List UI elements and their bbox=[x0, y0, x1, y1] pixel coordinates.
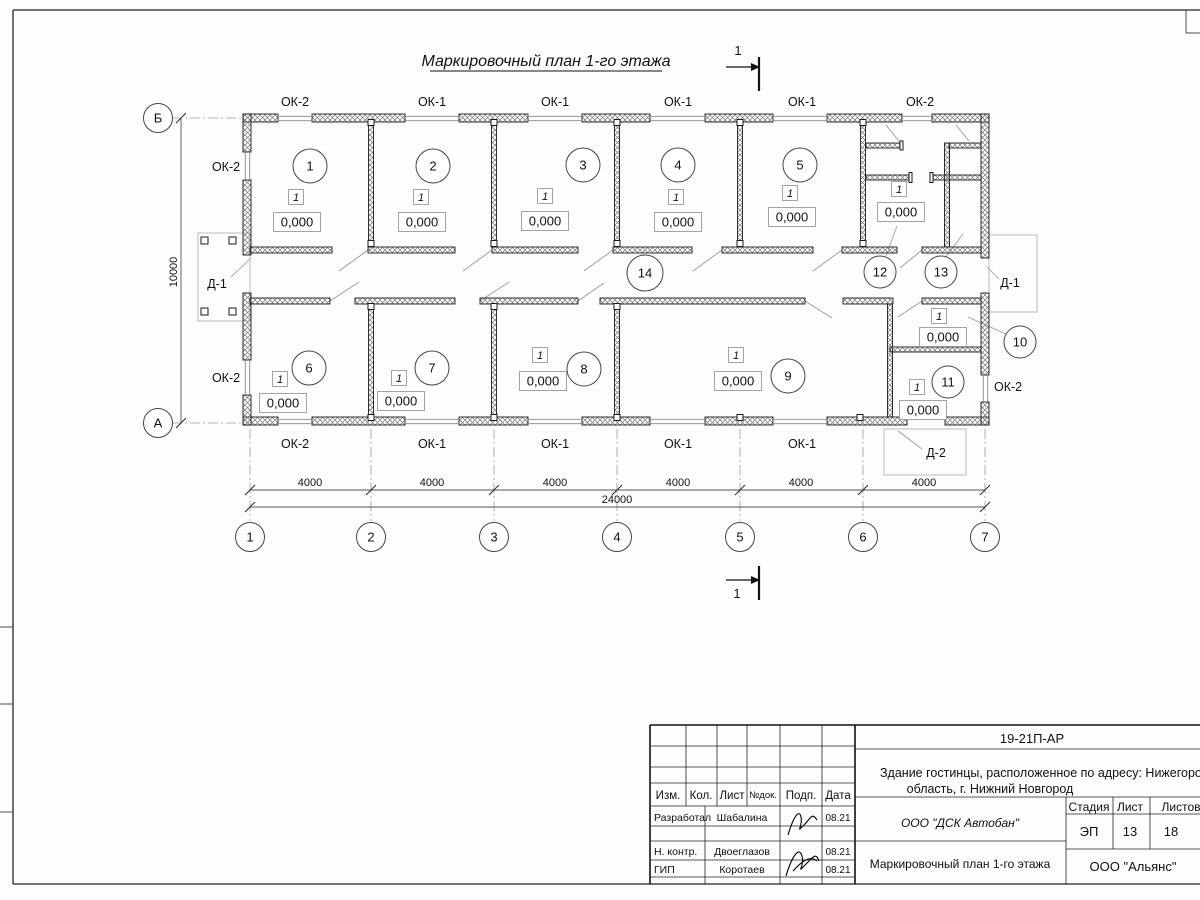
section-label-bottom: 1 bbox=[733, 586, 740, 601]
tb-col-data: Дата bbox=[825, 790, 851, 802]
tb-role-2: Н. контр. bbox=[654, 846, 697, 858]
room-circle-12: 12 bbox=[873, 265, 887, 280]
tb-date-2: 08.21 bbox=[825, 847, 850, 858]
room-circle-6: 6 bbox=[305, 361, 312, 376]
top-window-label-5: ОК-1 bbox=[788, 95, 816, 109]
mark-elev-r9: 0,000 bbox=[722, 374, 755, 389]
room-circle-1: 1 bbox=[306, 159, 313, 174]
tb-col-izm: Изм. bbox=[656, 790, 681, 802]
tb-sheet-value: 13 bbox=[1123, 824, 1137, 839]
mark-elev-r1: 0,000 bbox=[281, 215, 314, 230]
tb-contractor: ООО "Альянс" bbox=[1090, 859, 1177, 874]
drawing-sheet: Маркировочный план 1-го этажа 1 1 4000 4… bbox=[0, 0, 1200, 900]
axis-6: 6 bbox=[859, 530, 866, 545]
tb-sheets-header: Листов bbox=[1162, 800, 1200, 814]
axis-2: 2 bbox=[367, 530, 374, 545]
left-window-label-2: ОК-2 bbox=[212, 371, 240, 385]
room-circle-4: 4 bbox=[674, 158, 681, 173]
mark-elev-r7: 0,000 bbox=[385, 394, 418, 409]
tb-project-line1: Здание гостинцы, расположенное по адресу… bbox=[880, 766, 1200, 780]
mark-elev-z12: 0,000 bbox=[885, 205, 918, 220]
tb-sheet-header: Лист bbox=[1117, 800, 1144, 814]
mark-elev-r6: 0,000 bbox=[267, 396, 300, 411]
bottom-window-label-1: ОК-2 bbox=[281, 437, 309, 451]
dim-total: 24000 bbox=[602, 494, 633, 506]
tb-doc-code: 19-21П-АР bbox=[1000, 731, 1064, 746]
signature-1 bbox=[788, 814, 817, 835]
tb-name-1: Шабалина bbox=[717, 812, 768, 824]
dim-bay-6: 4000 bbox=[912, 477, 936, 489]
tb-project-line2: область, г. Нижний Новгород bbox=[907, 782, 1074, 796]
mark-type-r8: 1 bbox=[537, 350, 543, 362]
mark-type-r1: 1 bbox=[293, 192, 299, 204]
tb-stage-value: ЭП bbox=[1080, 824, 1099, 839]
left-window-label-1: ОК-2 bbox=[212, 160, 240, 174]
plan-title-text: Маркировочный план 1-го этажа bbox=[421, 53, 670, 70]
dim-bay-1: 4000 bbox=[298, 477, 322, 489]
room-circle-11: 11 bbox=[941, 375, 955, 390]
section-mark-top: 1 bbox=[726, 43, 760, 91]
mark-elev-r5: 0,000 bbox=[776, 210, 809, 225]
tb-date-3: 08.21 bbox=[825, 865, 850, 876]
room-circle-3: 3 bbox=[579, 158, 586, 173]
dim-bay-4: 4000 bbox=[666, 477, 690, 489]
tb-role-1: Разработал bbox=[654, 812, 711, 824]
mark-type-r4: 1 bbox=[673, 192, 679, 204]
tb-name-2: Двоеглазов bbox=[714, 846, 770, 858]
tb-name-3: Коротаев bbox=[719, 864, 765, 876]
sheet-frame bbox=[0, 10, 1200, 884]
room-circle-13: 13 bbox=[934, 265, 948, 280]
mark-elev-r10: 0,000 bbox=[927, 330, 960, 345]
room-circle-2: 2 bbox=[429, 159, 436, 174]
plan-title: Маркировочный план 1-го этажа bbox=[421, 53, 670, 71]
section-label-top: 1 bbox=[734, 43, 741, 58]
mark-type-r5: 1 bbox=[787, 188, 793, 200]
tb-org: ООО "ДСК Автобан" bbox=[901, 816, 1020, 830]
mark-type-r6: 1 bbox=[277, 374, 283, 386]
mark-type-r7: 1 bbox=[396, 373, 402, 385]
mark-elev-r8: 0,000 bbox=[527, 374, 560, 389]
axis-3: 3 bbox=[490, 530, 497, 545]
title-block: Изм. Кол. Лист №док. Подп. Дата Разработ… bbox=[650, 725, 1200, 884]
mark-type-r11: 1 bbox=[914, 382, 920, 394]
mark-type-r2: 1 bbox=[418, 192, 424, 204]
dim-bay-5: 4000 bbox=[789, 477, 813, 489]
room-circle-8: 8 bbox=[580, 362, 587, 377]
tb-sheets-value: 18 bbox=[1164, 824, 1178, 839]
axis-5: 5 bbox=[736, 530, 743, 545]
axis-a: А bbox=[154, 416, 163, 431]
tb-stage-header: Стадия bbox=[1069, 800, 1110, 814]
top-window-label-2: ОК-1 bbox=[418, 95, 446, 109]
east-porch bbox=[989, 235, 1037, 312]
bottom-window-label-2: ОК-1 bbox=[418, 437, 446, 451]
room-circle-5: 5 bbox=[796, 158, 803, 173]
dim-bay-3: 4000 bbox=[543, 477, 567, 489]
tb-role-3: ГИП bbox=[654, 864, 675, 876]
section-mark-bottom: 1 bbox=[726, 566, 760, 601]
dim-bay-2: 4000 bbox=[420, 477, 444, 489]
top-window-label-3: ОК-1 bbox=[541, 95, 569, 109]
axis-7: 7 bbox=[981, 530, 988, 545]
mark-type-z12: 1 bbox=[896, 184, 902, 196]
signature-2 bbox=[786, 852, 819, 876]
west-door-label: Д-1 bbox=[207, 277, 227, 291]
axis-1: 1 bbox=[246, 530, 253, 545]
top-window-label-4: ОК-1 bbox=[664, 95, 692, 109]
mark-elev-r3: 0,000 bbox=[529, 214, 562, 229]
east-door-label: Д-1 bbox=[1000, 276, 1020, 290]
tb-drawing-title: Маркировочный план 1-го этажа bbox=[870, 857, 1051, 871]
room-circle-7: 7 bbox=[428, 361, 435, 376]
mark-type-r9: 1 bbox=[733, 350, 739, 362]
mark-elev-r2: 0,000 bbox=[406, 215, 439, 230]
room-circle-9: 9 bbox=[784, 369, 791, 384]
room-circle-14: 14 bbox=[638, 266, 652, 281]
tb-col-list: Лист bbox=[720, 790, 746, 802]
tb-col-kol: Кол. bbox=[690, 790, 713, 802]
bottom-window-label-4: ОК-1 bbox=[664, 437, 692, 451]
axis-4: 4 bbox=[613, 530, 620, 545]
mark-type-r3: 1 bbox=[542, 191, 548, 203]
bottom-window-label-5: ОК-1 bbox=[788, 437, 816, 451]
tb-date-1: 08.21 bbox=[825, 813, 850, 824]
mark-elev-r11: 0,000 bbox=[907, 403, 940, 418]
south-porch bbox=[884, 429, 966, 475]
bottom-window-label-3: ОК-1 bbox=[541, 437, 569, 451]
tb-col-podp: Подп. bbox=[786, 790, 817, 802]
tb-col-doc: №док. bbox=[749, 790, 777, 801]
mark-type-r10: 1 bbox=[936, 311, 942, 323]
top-window-label-6: ОК-2 bbox=[906, 95, 934, 109]
top-window-label-1: ОК-2 bbox=[281, 95, 309, 109]
room-numbers: 1 2 3 4 5 6 7 8 9 10 11 12 13 14 bbox=[292, 148, 1036, 398]
room-circle-10: 10 bbox=[1013, 335, 1027, 350]
south-door-label: Д-2 bbox=[926, 446, 946, 460]
dim-depth: 10000 bbox=[168, 257, 180, 288]
right-window-label: ОК-2 bbox=[994, 380, 1022, 394]
floor-plan-drawing: Маркировочный план 1-го этажа 1 1 4000 4… bbox=[0, 0, 1200, 900]
axis-b: Б bbox=[154, 111, 163, 126]
mark-elev-r4: 0,000 bbox=[662, 215, 695, 230]
